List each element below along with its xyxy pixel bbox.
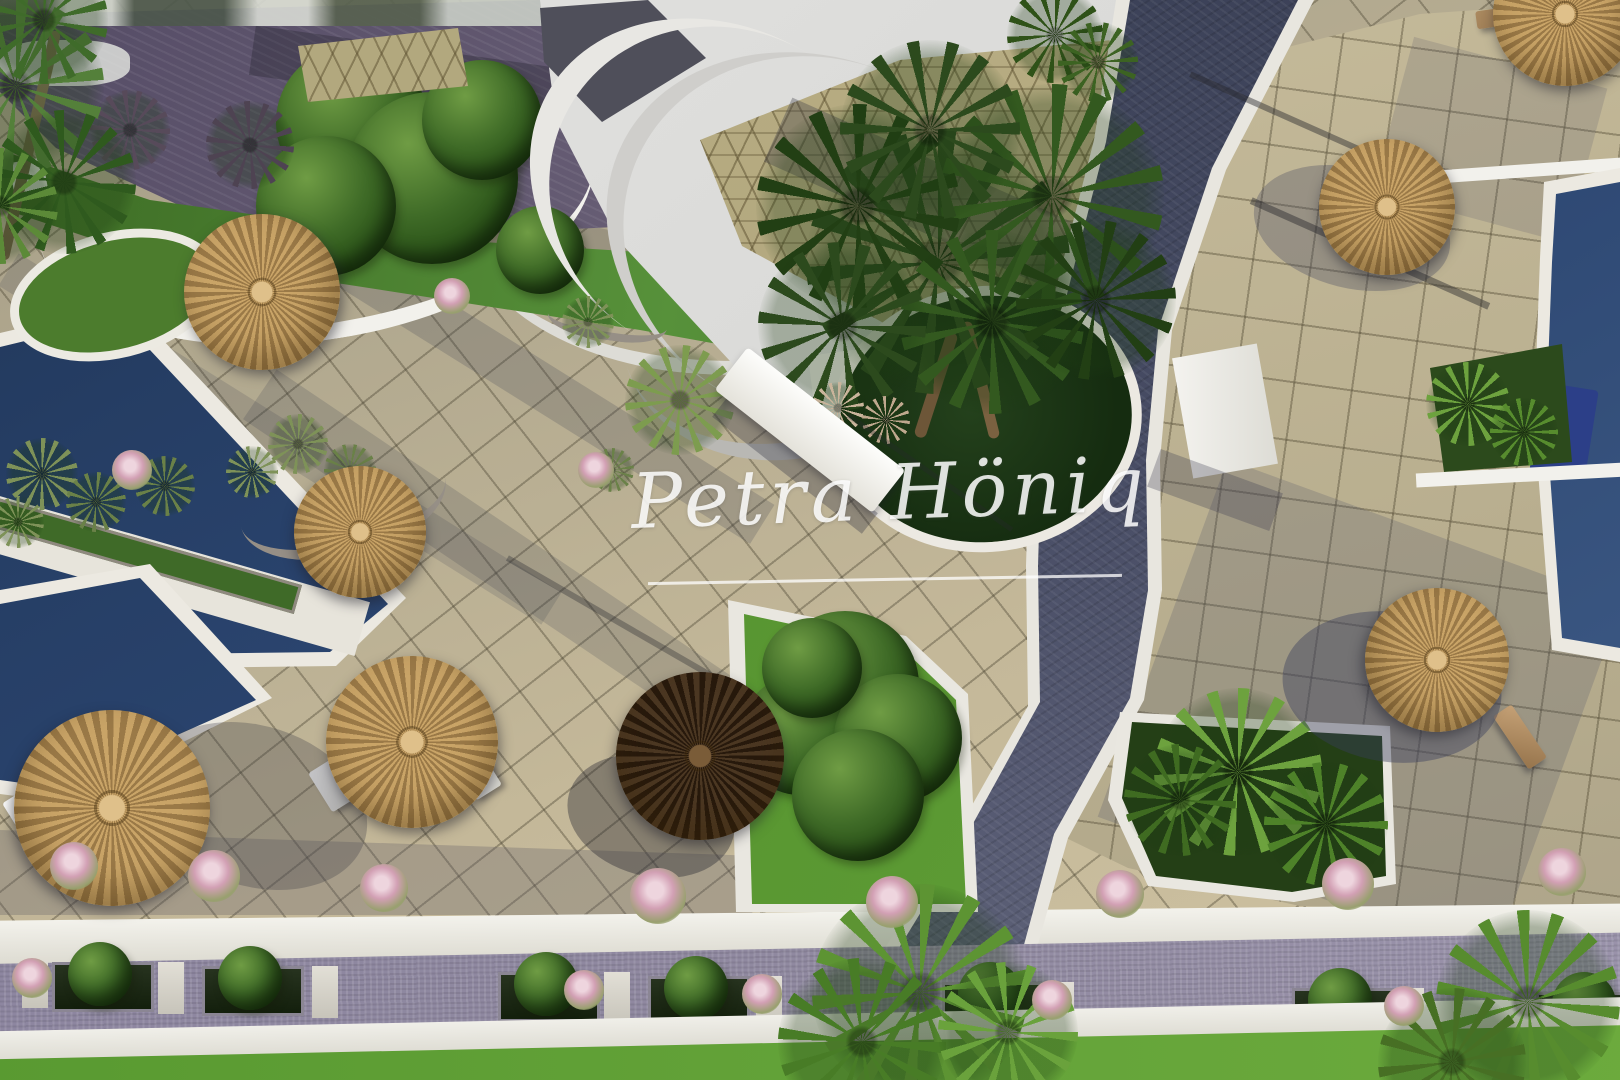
flowering-shrub xyxy=(1032,980,1072,1020)
flowering-shrub xyxy=(1322,858,1374,910)
flowering-shrub xyxy=(564,970,604,1010)
planter-shrub xyxy=(792,729,924,861)
planter-post xyxy=(312,966,338,1018)
aerial-render-canvas: Petra Höniq xyxy=(0,0,1620,1080)
straw-parasol xyxy=(184,214,340,370)
flowering-shrub xyxy=(50,842,98,890)
watermark-text: Petra Höniq xyxy=(630,439,1151,546)
flowering-shrub xyxy=(112,450,152,490)
planter-bush xyxy=(664,956,728,1020)
planter-post xyxy=(158,962,184,1014)
flowering-shrub xyxy=(12,958,52,998)
flowering-shrub xyxy=(1538,848,1586,896)
planter-post xyxy=(604,972,630,1024)
flowering-shrub xyxy=(434,278,470,314)
flowering-shrub xyxy=(188,850,240,902)
flowering-shrub xyxy=(630,868,686,924)
flowering-shrub xyxy=(1384,986,1424,1026)
flowering-shrub xyxy=(1096,870,1144,918)
flowering-shrub xyxy=(742,974,782,1014)
planter-bush xyxy=(218,946,282,1010)
planter-shrub xyxy=(762,618,862,718)
flowering-shrub xyxy=(360,864,408,912)
planter-bush xyxy=(68,942,132,1006)
flowering-shrub xyxy=(866,876,918,928)
